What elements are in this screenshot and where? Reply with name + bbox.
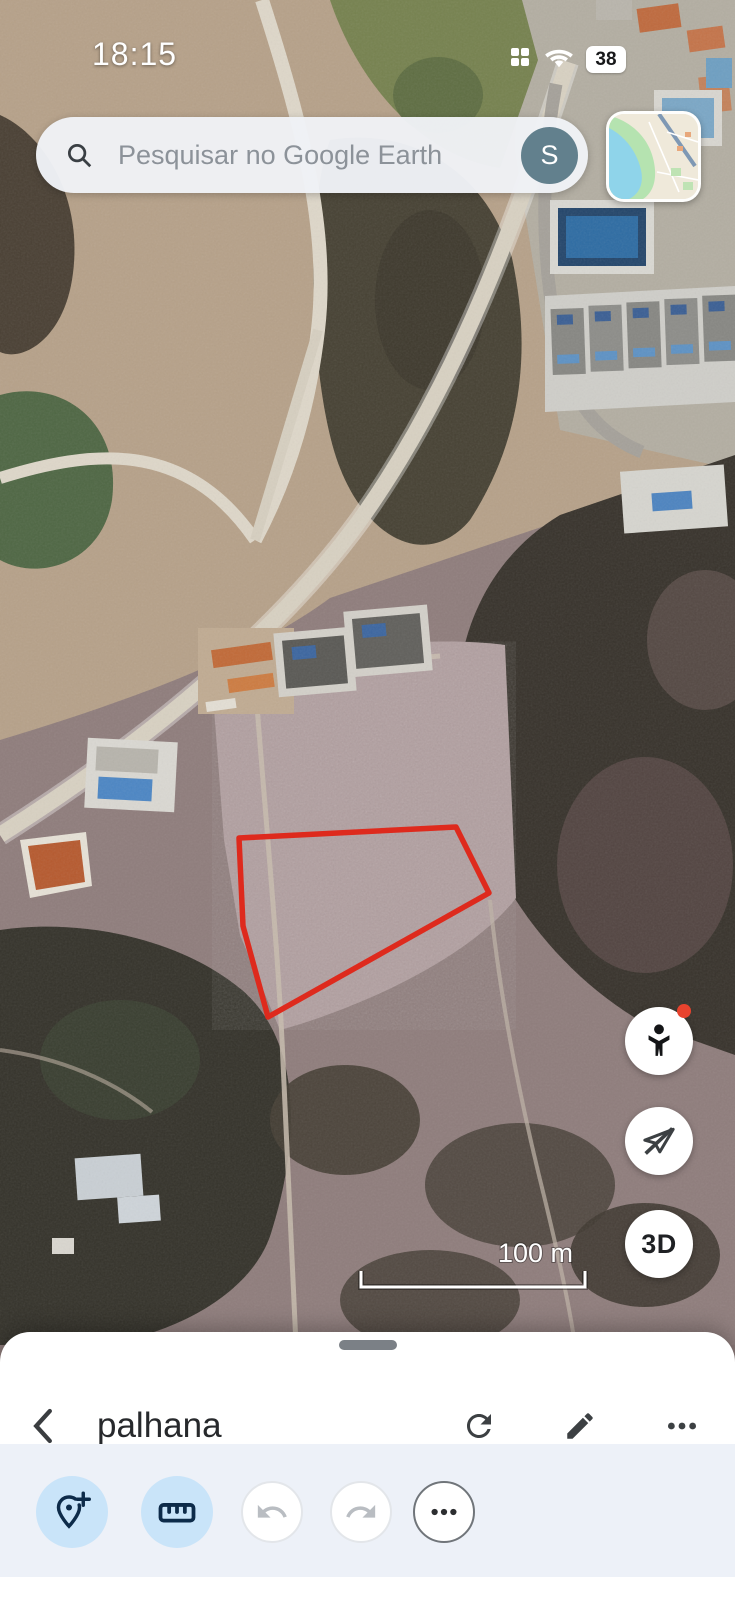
map-style-thumbnail-button[interactable] [606, 111, 701, 202]
overflow-menu-button[interactable] [660, 1404, 704, 1448]
account-avatar[interactable]: S [521, 127, 578, 184]
measure-button[interactable] [141, 1476, 213, 1548]
battery-icon: 38 [586, 46, 626, 73]
back-chevron-icon [30, 1407, 56, 1445]
undo-icon [255, 1495, 289, 1529]
fly-mode-off-icon [639, 1121, 679, 1161]
fly-mode-off-button[interactable] [625, 1107, 693, 1175]
wifi-icon [544, 44, 574, 75]
search-bar[interactable]: S [36, 117, 588, 193]
ruler-icon [155, 1490, 199, 1534]
mini-map-art [609, 114, 698, 199]
sheet-drag-handle[interactable] [339, 1340, 397, 1350]
more-tools-icon [429, 1497, 459, 1527]
status-icons: 38 [508, 44, 626, 75]
add-placemark-button[interactable] [36, 1476, 108, 1548]
back-button[interactable] [22, 1404, 64, 1448]
refresh-icon [461, 1408, 497, 1444]
more-tools-button[interactable] [413, 1481, 475, 1543]
3d-toggle-button[interactable]: 3D [625, 1210, 693, 1278]
3d-label: 3D [641, 1229, 677, 1260]
undo-button[interactable] [241, 1481, 303, 1543]
scale-label: 100 m [498, 1238, 573, 1268]
search-icon [64, 140, 94, 170]
edit-button[interactable] [558, 1404, 602, 1448]
app-grid-icon [508, 45, 532, 74]
status-time: 18:15 [92, 36, 177, 73]
edit-pencil-icon [563, 1409, 597, 1443]
pegman-notification-dot [677, 1004, 691, 1018]
project-title: palhana [97, 1404, 222, 1448]
editing-toolbar [0, 1444, 735, 1577]
refresh-button[interactable] [457, 1404, 501, 1448]
redo-button[interactable] [330, 1481, 392, 1543]
add-placemark-icon [51, 1491, 93, 1533]
overflow-menu-icon [665, 1409, 699, 1443]
battery-percent: 38 [595, 49, 616, 71]
redo-icon [344, 1495, 378, 1529]
bottom-sheet: palhana [0, 1332, 735, 1600]
search-input[interactable] [116, 139, 521, 172]
google-earth-app: 100 m 18:15 38 [0, 0, 735, 1600]
pegman-icon [640, 1022, 678, 1060]
